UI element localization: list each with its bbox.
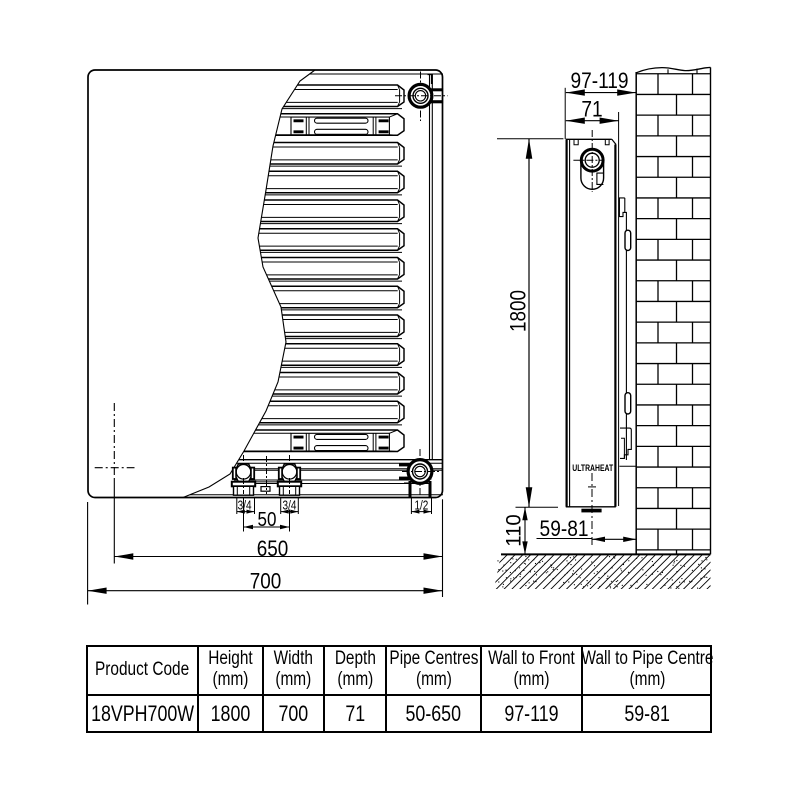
svg-text:700: 700	[250, 569, 282, 594]
svg-text:650: 650	[257, 536, 289, 561]
svg-text:1/2: 1/2	[414, 499, 428, 512]
svg-text:3/4: 3/4	[238, 499, 252, 512]
svg-text:50: 50	[258, 508, 277, 531]
svg-text:ULTRAHEAT: ULTRAHEAT	[572, 463, 613, 473]
svg-text:59-81: 59-81	[540, 517, 589, 542]
svg-text:1800: 1800	[506, 290, 531, 332]
svg-text:110: 110	[502, 514, 526, 547]
